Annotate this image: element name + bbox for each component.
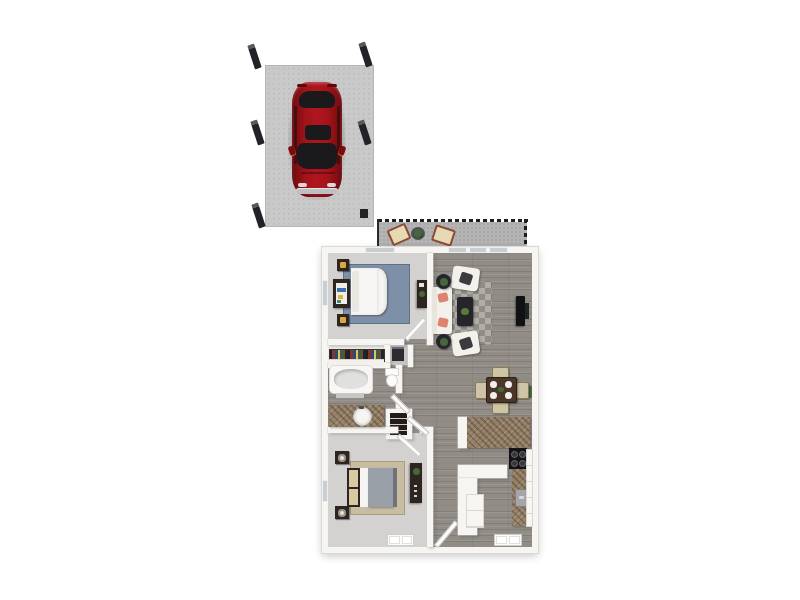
wall-mounted-tv (516, 296, 525, 326)
sink-faucet (519, 496, 524, 499)
wall-utility-right (408, 345, 413, 367)
car-side-window-right (337, 106, 340, 164)
wall-bedroom2-right (427, 427, 433, 547)
living-side-table-bottom (436, 334, 451, 349)
apartment-shell (322, 247, 538, 553)
kitchen-bar-cabinet-front (467, 495, 483, 527)
dining-chair-right (516, 382, 529, 399)
bedroom2-bed-footboard (393, 468, 397, 507)
patio-railing-top (378, 219, 528, 222)
armchair-pillow (459, 336, 474, 350)
bedroom1-top-window (365, 247, 395, 253)
bedroom2-headboard (347, 468, 360, 507)
vanity-faucet (359, 406, 364, 409)
car-hood-line (301, 172, 335, 174)
duvet-fold (377, 270, 379, 313)
dresser-plant (419, 291, 425, 297)
bedroom2-nightstand-bottom (335, 506, 349, 519)
cream-lamp (338, 509, 346, 517)
sofa-pillow-coral (437, 317, 449, 328)
vanity-sink (353, 407, 372, 426)
dining-table (486, 377, 517, 403)
plate (490, 381, 497, 388)
sofa-pillow-coral (437, 292, 449, 303)
dresser-plant (413, 468, 420, 475)
bedroom2-dresser (410, 463, 422, 503)
car-rear-window (299, 91, 335, 108)
wall-bedroom2-top-left (328, 427, 398, 433)
cream-lamp (338, 454, 346, 462)
sofa-back (432, 287, 437, 334)
carport-post-top-right (358, 42, 372, 68)
car-headlight-left (298, 183, 307, 187)
window-pane (509, 536, 520, 544)
carport-post-top-left (247, 44, 261, 70)
wall-breakfast-bar-cap (458, 417, 467, 448)
console-decor-blue (337, 288, 346, 292)
armchair-pillow (459, 271, 474, 285)
patio-plant (414, 229, 422, 237)
window-pane (402, 536, 413, 544)
gold-lamp (340, 317, 346, 323)
burner (511, 451, 518, 458)
bath-mat (336, 393, 364, 398)
car-taillight-right (327, 84, 337, 87)
toilet (385, 368, 397, 386)
bedroom2-left-window (322, 480, 328, 502)
kitchen-breakfast-bar (467, 417, 530, 448)
bathtub (330, 366, 372, 393)
coffee-table-bowl (461, 308, 469, 315)
bedroom1-left-window (322, 280, 328, 306)
living-patio-sliding-door (448, 247, 508, 253)
console-decor-yellow (338, 295, 343, 299)
console-decor-teal (337, 300, 341, 303)
living-armchair-bottom (451, 330, 481, 357)
bedroom2-nightstand-top (335, 451, 349, 464)
plate (505, 381, 512, 388)
kitchen-range (509, 448, 527, 469)
car-headlight-right (327, 183, 336, 187)
plate (490, 392, 497, 399)
red-car (288, 80, 346, 200)
bedroom1-nightstand-bottom (337, 314, 349, 326)
window-pane (496, 536, 507, 544)
car-taillight-left (297, 84, 307, 87)
window-pane (389, 536, 400, 544)
bedroom1-dresser (417, 280, 427, 308)
kitchen-cabinets-right (527, 450, 532, 526)
side-table-plant (440, 338, 448, 346)
table-centerpiece (498, 387, 504, 392)
floorplan-image[interactable] (0, 0, 800, 600)
living-sofa (432, 287, 452, 334)
bedroom2-bed-sheet (360, 468, 368, 507)
car-sunroof (305, 125, 331, 140)
bathtub-basin (334, 369, 368, 389)
car-windshield (297, 143, 337, 169)
utility-water-heater (392, 347, 404, 361)
dresser-knobs (414, 485, 417, 497)
burner (519, 460, 526, 467)
headboard-cushion (349, 489, 358, 505)
bathroom-vanity (329, 405, 384, 427)
gold-lamp (340, 262, 346, 268)
bedroom2-bottom-window (387, 534, 414, 546)
carport-post-mid-left (250, 120, 264, 146)
kitchen-bottom-window (494, 534, 522, 546)
wall-bedroom1-bottom (328, 339, 404, 345)
toilet-bowl (386, 374, 398, 387)
living-side-table-top (436, 274, 451, 289)
living-armchair-top (451, 265, 481, 292)
patio-railing-right (524, 219, 527, 248)
side-table-plant (440, 278, 448, 286)
burner (519, 451, 526, 458)
bed-pillows (352, 271, 359, 312)
plate (505, 392, 512, 399)
tv-mount-bracket (525, 303, 529, 319)
bedroom2-bed-duvet (368, 468, 393, 507)
burner (511, 460, 518, 467)
living-coffee-table (457, 297, 473, 326)
carport-post-bottom-left (251, 203, 265, 229)
patio-railing-left (377, 219, 379, 248)
bedroom1-nightstand-top (337, 259, 349, 271)
bedroom1-storage-console (333, 279, 350, 308)
carport (240, 30, 385, 235)
carport-post-bottom-right (360, 209, 368, 218)
car-front-bumper (296, 188, 338, 194)
headboard-cushion (349, 470, 358, 487)
bedroom1-bed (351, 268, 387, 315)
kitchen-bar-counter-horizontal (458, 465, 507, 478)
dresser-decor (419, 283, 424, 287)
